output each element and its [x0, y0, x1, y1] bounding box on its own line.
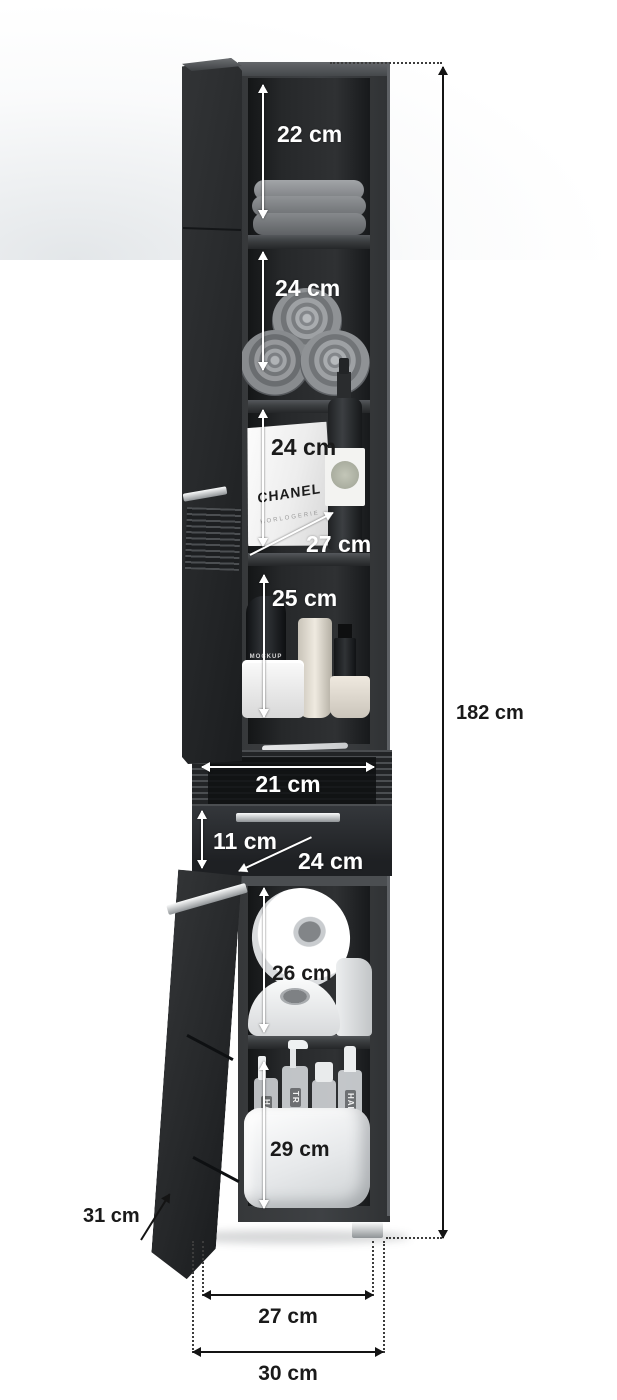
drawer-handle [236, 813, 340, 822]
dim-arrow-comp2-height [262, 252, 264, 370]
dim-arrow-drawer-inner-width [202, 766, 374, 768]
spray-bottle-2-label: TR [290, 1088, 301, 1107]
cabinet-upper-right-edge [387, 62, 390, 757]
extension-line-top [330, 62, 442, 64]
dim-label-comp3-depth: 27 cm [306, 531, 371, 558]
cabinet-lower-right-edge [387, 876, 390, 1216]
dim-label-comp2-height: 24 cm [275, 275, 340, 302]
dim-arrow-comp4-height [263, 575, 265, 717]
towel-fold [253, 213, 366, 235]
overall-height-label: 182 cm [456, 702, 524, 725]
bottle-pump [339, 358, 349, 374]
extension-line-bottom [386, 1237, 442, 1239]
dim-arrow-comp3-height [262, 410, 264, 546]
upper-door [182, 58, 242, 764]
dim-arrow-comp5-height [263, 888, 265, 1032]
dim-label-overall-depth: 31 cm [83, 1205, 140, 1228]
overall-height-dimension-line [442, 67, 444, 1238]
dim-label-drawer-front-height: 11 cm [213, 828, 277, 855]
candle-cup [330, 676, 370, 718]
spray-bottle-2-pump-head [288, 1040, 308, 1049]
dim-arrow-overall-width [193, 1351, 383, 1353]
dim-label-comp4-height: 25 cm [272, 585, 337, 612]
dim-label-overall-width: 30 cm [193, 1362, 383, 1386]
dim-label-feet-span: 27 cm [203, 1305, 373, 1329]
dim-arrow-comp1-height [262, 85, 264, 218]
dim-label-comp1-height: 22 cm [277, 121, 342, 148]
extension-line-left-inner [202, 1241, 204, 1296]
dim-label-comp5-height: 26 cm [272, 962, 332, 986]
dim-arrow-comp6-height [263, 1062, 265, 1208]
white-jar [242, 660, 304, 718]
spray-bottle-3-cap [315, 1062, 333, 1082]
product-dimension-diagram: CHANEL HORLOGERIE MOCKUP DESIGN HAIR TR [0, 0, 617, 1400]
dim-arrow-feet-span [203, 1294, 373, 1296]
lower-door [150, 870, 242, 1281]
cabinet-upper-top-face [238, 62, 390, 76]
extension-line-right-inner [372, 1241, 374, 1296]
extension-line-right-outer [383, 1241, 385, 1353]
cabinet-foot-right [352, 1222, 383, 1238]
folded-towel [252, 180, 366, 238]
dim-arrow-drawer-front-height [201, 811, 203, 868]
dim-label-comp6-height: 29 cm [270, 1138, 330, 1162]
rolled-towel-right [300, 330, 370, 396]
bottle-label-circle [331, 461, 359, 489]
upper-door-louvers [185, 507, 241, 571]
dim-label-drawer-inner-width: 21 cm [202, 771, 374, 798]
dim-label-drawer-depth: 24 cm [298, 848, 363, 875]
extension-line-left-outer [192, 1241, 194, 1353]
spray-bottle-4-nozzle [344, 1046, 356, 1072]
toilet-roll-front-hole [280, 988, 310, 1005]
cabinet-lower-top-face [238, 876, 390, 886]
dim-label-comp3-height: 24 cm [271, 434, 336, 461]
toilet-roll-side [336, 958, 372, 1036]
